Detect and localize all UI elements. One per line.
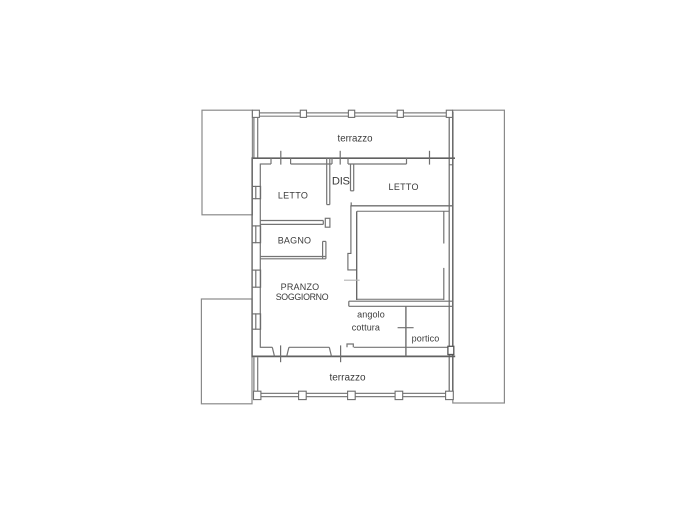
- svg-text:LETTO: LETTO: [278, 190, 308, 200]
- svg-text:DIS: DIS: [332, 176, 350, 188]
- svg-text:PRANZO: PRANZO: [281, 282, 320, 292]
- svg-text:LETTO: LETTO: [389, 182, 419, 192]
- svg-text:portico: portico: [412, 333, 440, 343]
- svg-text:terrazzo: terrazzo: [338, 134, 373, 145]
- svg-text:terrazzo: terrazzo: [329, 372, 366, 383]
- svg-text:cottura: cottura: [352, 322, 380, 332]
- svg-text:angolo: angolo: [357, 309, 385, 319]
- svg-text:BAGNO: BAGNO: [278, 235, 312, 245]
- svg-text:SOGGIORNO: SOGGIORNO: [276, 292, 329, 302]
